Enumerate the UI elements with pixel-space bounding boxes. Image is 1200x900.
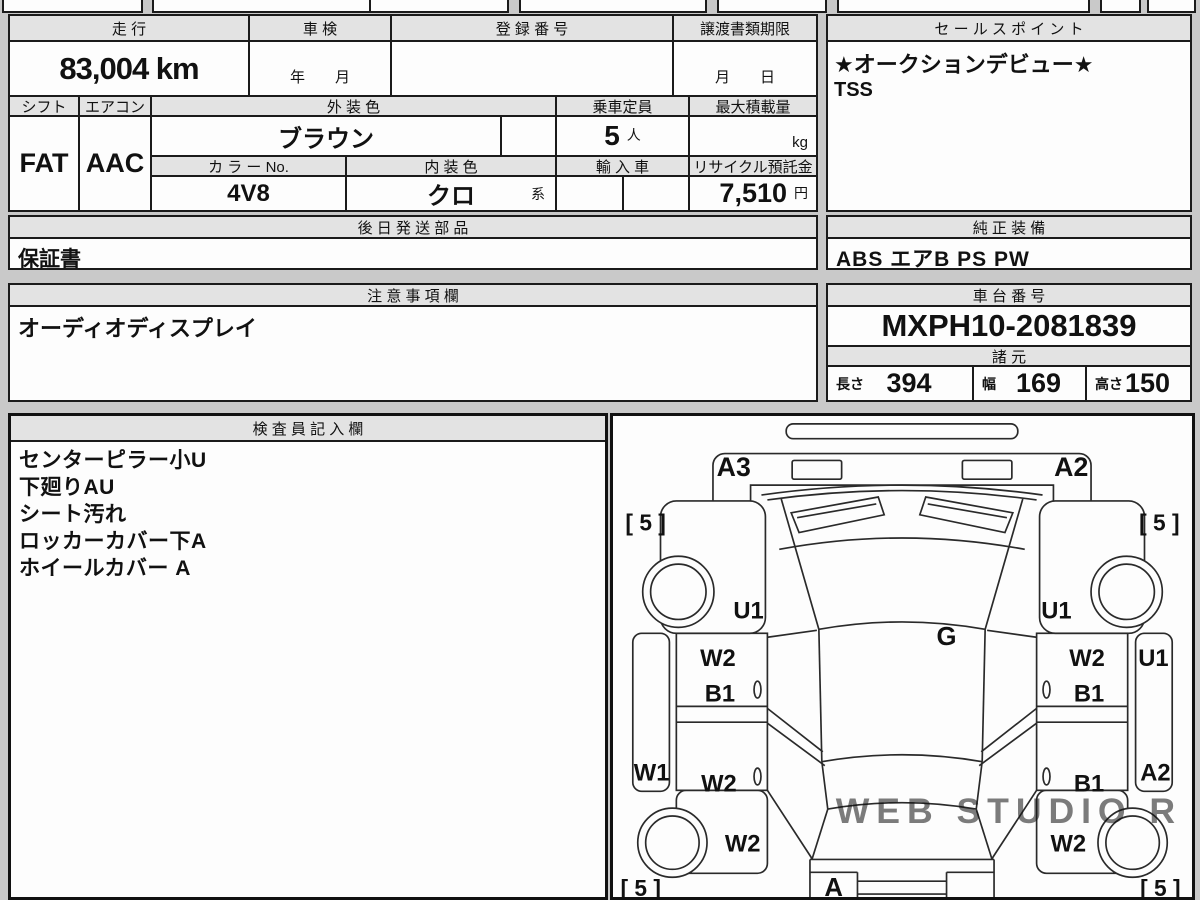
genuine-equipment-header: 純 正 装 備 xyxy=(826,215,1192,239)
roof-front-arc xyxy=(819,622,985,629)
cutoff-row-cell xyxy=(717,0,827,13)
code-w2-left-front-door: W2 xyxy=(700,646,736,672)
wiper-right-blade xyxy=(928,504,1007,518)
capacity-value-cell: 5 人 xyxy=(555,115,690,157)
tread-front-left: [ 5 ] xyxy=(625,510,665,536)
car-diagram: WEB STUDIO R A3A2[ 5 ][ 5 ]U1U1GW2B1W2B1… xyxy=(613,416,1192,897)
front-bumper-outline xyxy=(713,454,1091,515)
capacity-header: 乗車定員 xyxy=(555,95,690,117)
capacity-unit: 人 xyxy=(627,125,641,145)
import-value-cell-2 xyxy=(622,175,690,212)
inspector-note: シート汚れ xyxy=(19,501,597,528)
wiper-right xyxy=(920,497,1013,533)
inspector-note: センターピラー小U xyxy=(19,447,597,474)
shift-header: シフト xyxy=(8,95,80,117)
interior-color-header: 内 装 色 xyxy=(345,155,557,177)
spec-width-cell: 幅 169 xyxy=(972,365,1087,402)
wiper-left xyxy=(791,497,884,533)
code-w2-right-front-door: W2 xyxy=(1069,646,1105,672)
windshield-bottom-arc xyxy=(779,538,1024,549)
interior-color-value-cell: クロ 系 xyxy=(345,175,557,212)
sales-point-line1: ★オークションデビュー★ xyxy=(834,47,1093,79)
exterior-color-suffix-cell xyxy=(500,115,557,157)
spec-length-label: 長さ xyxy=(836,374,864,394)
inspector-note: ロッカーカバー下A xyxy=(19,528,597,555)
color-no-value: 4V8 xyxy=(150,175,347,212)
recycle-deposit-value: 7,510 xyxy=(719,178,787,209)
code-a2-right-rear: A2 xyxy=(1140,760,1170,786)
transfer-deadline-header: 譲渡書類期限 xyxy=(672,14,818,42)
cutoff-row-cell xyxy=(152,0,371,13)
spec-width-label: 幅 xyxy=(982,374,996,394)
headlight-left xyxy=(792,460,841,479)
wheel-front-left-inner xyxy=(651,564,706,619)
recycle-deposit-value-cell: 7,510 円 xyxy=(688,175,818,212)
handle-left-front xyxy=(754,681,761,698)
mileage-header: 走 行 xyxy=(8,14,250,42)
mileage-value: 83,004 km xyxy=(8,40,250,97)
tread-rear-right: [ 5 ] xyxy=(1140,875,1180,897)
code-b1-right-front-door: B1 xyxy=(1074,681,1104,707)
code-b1-right-rear-door: B1 xyxy=(1074,771,1104,797)
code-b1-left-front-door: B1 xyxy=(705,681,735,707)
color-no-header: カ ラ ー No. xyxy=(150,155,347,177)
rear-window-top-arc xyxy=(822,755,982,762)
interior-color-value: クロ xyxy=(427,176,475,211)
watermark: WEB STUDIO R xyxy=(836,791,1182,831)
aircon-header: エアコン xyxy=(78,95,152,117)
import-header: 輸 入 車 xyxy=(555,155,690,177)
right-door-molding xyxy=(1037,706,1128,722)
sales-point-header: セ ー ル ス ポ イ ン ト xyxy=(826,14,1192,42)
handle-right-rear xyxy=(1043,768,1050,785)
left-door-molding xyxy=(676,706,767,722)
cutoff-row-cell xyxy=(2,0,143,13)
specs-header: 諸 元 xyxy=(826,345,1192,367)
chassis-number-header: 車 台 番 号 xyxy=(826,283,1192,307)
code-w2-left-rear-door: W2 xyxy=(701,771,737,797)
cabin-right-edge xyxy=(982,629,985,761)
code-u1-right-rocker: U1 xyxy=(1138,646,1168,672)
inspection-value: 年 月 xyxy=(248,40,392,97)
transfer-deadline-value: 月 日 xyxy=(672,40,818,97)
roof-panel xyxy=(786,424,1018,439)
shift-value: FAT xyxy=(8,115,80,212)
car-diagram-box: WEB STUDIO R A3A2[ 5 ][ 5 ]U1U1GW2B1W2B1… xyxy=(610,413,1195,900)
registration-value xyxy=(390,40,674,97)
wheel-front-right-inner xyxy=(1099,564,1154,619)
wiper-left-blade xyxy=(797,504,876,518)
code-a2-front-bumper: A2 xyxy=(1054,452,1088,482)
tread-rear-left: [ 5 ] xyxy=(620,875,660,897)
cutoff-row-cell xyxy=(1100,0,1141,13)
handle-right-front xyxy=(1043,681,1050,698)
code-g-windshield: G xyxy=(937,623,957,651)
code-a3-front-bumper: A3 xyxy=(717,452,751,482)
code-w2-right-rear-fender: W2 xyxy=(1050,832,1086,858)
rear-bumper-notch-right xyxy=(947,872,995,897)
notes-value: オーディオディスプレイ xyxy=(8,305,818,402)
import-value-cell-1 xyxy=(555,175,624,212)
exterior-color-value: ブラウン xyxy=(150,115,502,157)
capacity-value: 5 xyxy=(604,120,620,152)
spec-height-label: 高さ xyxy=(1095,374,1123,394)
code-u1-front-right-fender: U1 xyxy=(1041,598,1071,624)
max-load-unit: kg xyxy=(792,134,808,151)
sales-point-body: ★オークションデビュー★ TSS xyxy=(826,40,1192,212)
cutoff-row-cell xyxy=(837,0,1090,13)
headlight-right xyxy=(962,460,1011,479)
recycle-deposit-header: リサイクル預託金 xyxy=(688,155,818,177)
sales-point-line2: TSS xyxy=(834,79,873,102)
inspector-note: 下廻りAU xyxy=(19,474,597,501)
code-u1-front-left-fender: U1 xyxy=(733,598,763,624)
cutoff-row-cell xyxy=(369,0,509,13)
genuine-equipment-value: ABS エアB PS PW xyxy=(826,237,1192,270)
spec-length-cell: 長さ 394 xyxy=(826,365,974,402)
cowl-arc-inner xyxy=(767,491,1036,500)
max-load-header: 最大積載量 xyxy=(688,95,818,117)
tailgate-left-edge xyxy=(812,809,828,859)
exterior-color-header: 外 装 色 xyxy=(150,95,557,117)
auction-sheet: 走 行 車 検 登 録 番 号 譲渡書類期限 83,004 km 年 月 月 日… xyxy=(0,0,1200,900)
code-w1-left-rocker: W1 xyxy=(634,760,670,786)
notes-header: 注 意 事 項 欄 xyxy=(8,283,818,307)
tread-front-right: [ 5 ] xyxy=(1139,510,1179,536)
cabin-left-edge xyxy=(819,629,822,761)
later-parts-header: 後 日 発 送 部 品 xyxy=(8,215,818,239)
inspector-notes-box: 検 査 員 記 入 欄 センターピラー小U下廻りAUシート汚れロッカーカバー下A… xyxy=(8,413,608,900)
interior-color-suffix: 系 xyxy=(531,184,545,204)
wheel-rear-left-inner xyxy=(646,816,699,869)
windshield-left-edge xyxy=(781,499,819,629)
registration-header: 登 録 番 号 xyxy=(390,14,674,42)
fold-lines-left xyxy=(767,630,824,858)
max-load-value-cell: kg xyxy=(688,115,818,157)
inspector-notes-list: センターピラー小U下廻りAUシート汚れロッカーカバー下Aホイールカバー A xyxy=(11,442,605,587)
spec-height-cell: 高さ 150 xyxy=(1085,365,1192,402)
rear-window-left-edge xyxy=(822,762,828,809)
code-a-rear-bumper: A xyxy=(824,874,843,897)
chassis-number-value: MXPH10-2081839 xyxy=(826,305,1192,347)
cutoff-row-cell xyxy=(1147,0,1196,13)
aircon-value: AAC xyxy=(78,115,152,212)
cutoff-row-cell xyxy=(519,0,707,13)
windshield-right-edge xyxy=(985,499,1023,629)
plate-recess xyxy=(857,881,946,894)
recycle-deposit-unit: 円 xyxy=(794,183,808,203)
code-w2-left-rear-fender: W2 xyxy=(725,832,761,858)
handle-left-rear xyxy=(754,768,761,785)
inspector-notes-header: 検 査 員 記 入 欄 xyxy=(11,416,605,442)
inspection-header: 車 検 xyxy=(248,14,392,42)
later-parts-value: 保証書 xyxy=(8,237,818,270)
inspector-note: ホイールカバー A xyxy=(19,555,597,582)
